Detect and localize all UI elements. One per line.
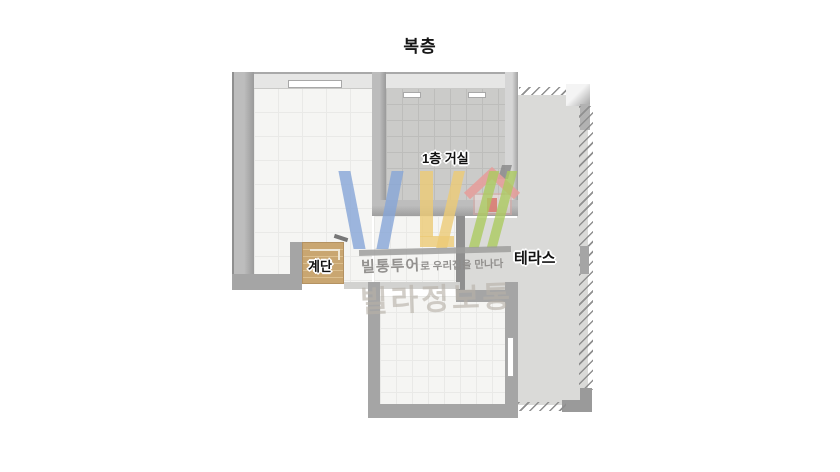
watermark-logo: 빌통투어로 우리집을 만나다 빌라정보통 <box>0 0 840 472</box>
logo-v-left-stroke <box>338 171 365 249</box>
watermark-brand: 빌라정보통 <box>359 272 513 321</box>
watermark-tagline-bold: 빌통투어 <box>361 257 421 276</box>
logo-l-vertical <box>420 171 433 237</box>
watermark-tagline-rest: 로 우리집을 만나다 <box>420 258 503 273</box>
floorplan: 1층 거실 계단 테라스 빌통투어로 우리집을 만나다 빌라정보통 <box>0 0 840 472</box>
logo-v-right-stroke <box>376 171 403 249</box>
